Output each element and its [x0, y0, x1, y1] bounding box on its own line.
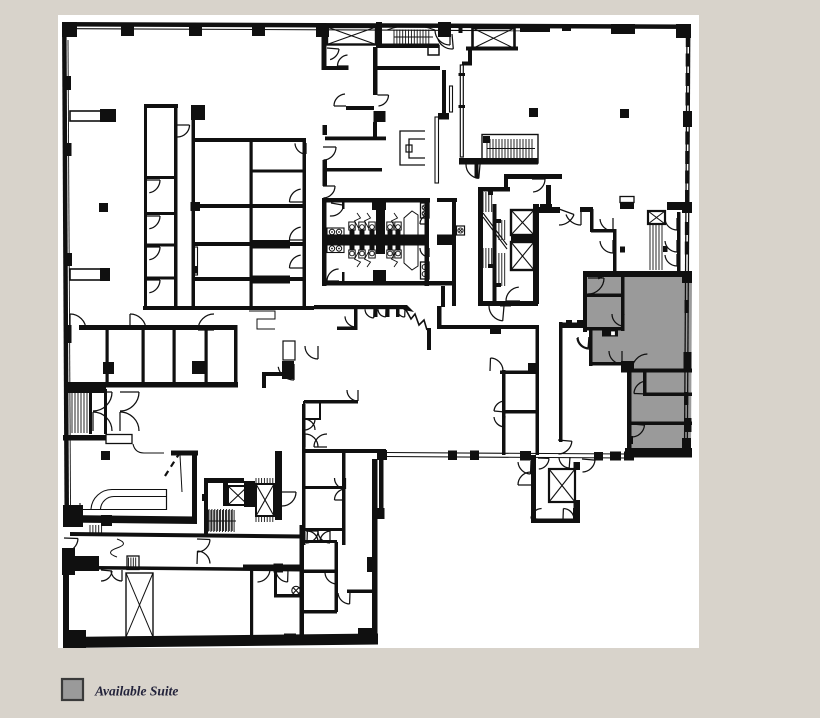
svg-text:Available Suite: Available Suite — [94, 684, 178, 699]
